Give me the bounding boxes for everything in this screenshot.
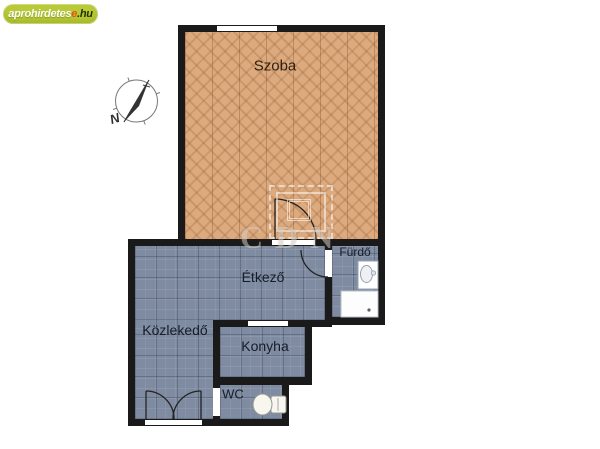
floorplan-image: aprohirdetes e .hu — [0, 0, 600, 449]
room-label-szoba: Szoba — [254, 58, 297, 75]
site-logo-badge: aprohirdetes e .hu — [3, 4, 98, 24]
logo-text-tld: .hu — [77, 8, 93, 20]
wall-wc-right — [282, 377, 289, 426]
door-opening-wc — [213, 388, 220, 416]
room-label-kozlekedo: Közlekedő — [142, 322, 207, 338]
room-label-etkezo: Étkező — [242, 269, 285, 285]
wall-szoba-left — [178, 25, 185, 246]
wall-konyha-right — [305, 320, 312, 385]
compass-icon — [113, 78, 160, 125]
watermark-stamp-core — [287, 199, 311, 221]
etkezo-floor — [135, 246, 325, 320]
watermark-text: CDN — [240, 219, 390, 256]
room-label-wc: WC — [222, 387, 244, 402]
wall-szoba-top — [178, 25, 385, 32]
compass-north-letter: N — [108, 110, 122, 127]
wall-left-outer — [128, 239, 135, 426]
opening-konyha-hatch — [248, 321, 288, 326]
wall-right-outer — [378, 25, 385, 325]
room-label-konyha: Konyha — [241, 338, 288, 354]
window-szoba — [217, 26, 277, 31]
wall-furdo-bottom — [325, 317, 385, 325]
logo-text-main: aprohirdetes — [8, 8, 71, 20]
door-opening-entrance — [145, 420, 202, 425]
wall-konyha-wc-divider — [213, 377, 312, 385]
